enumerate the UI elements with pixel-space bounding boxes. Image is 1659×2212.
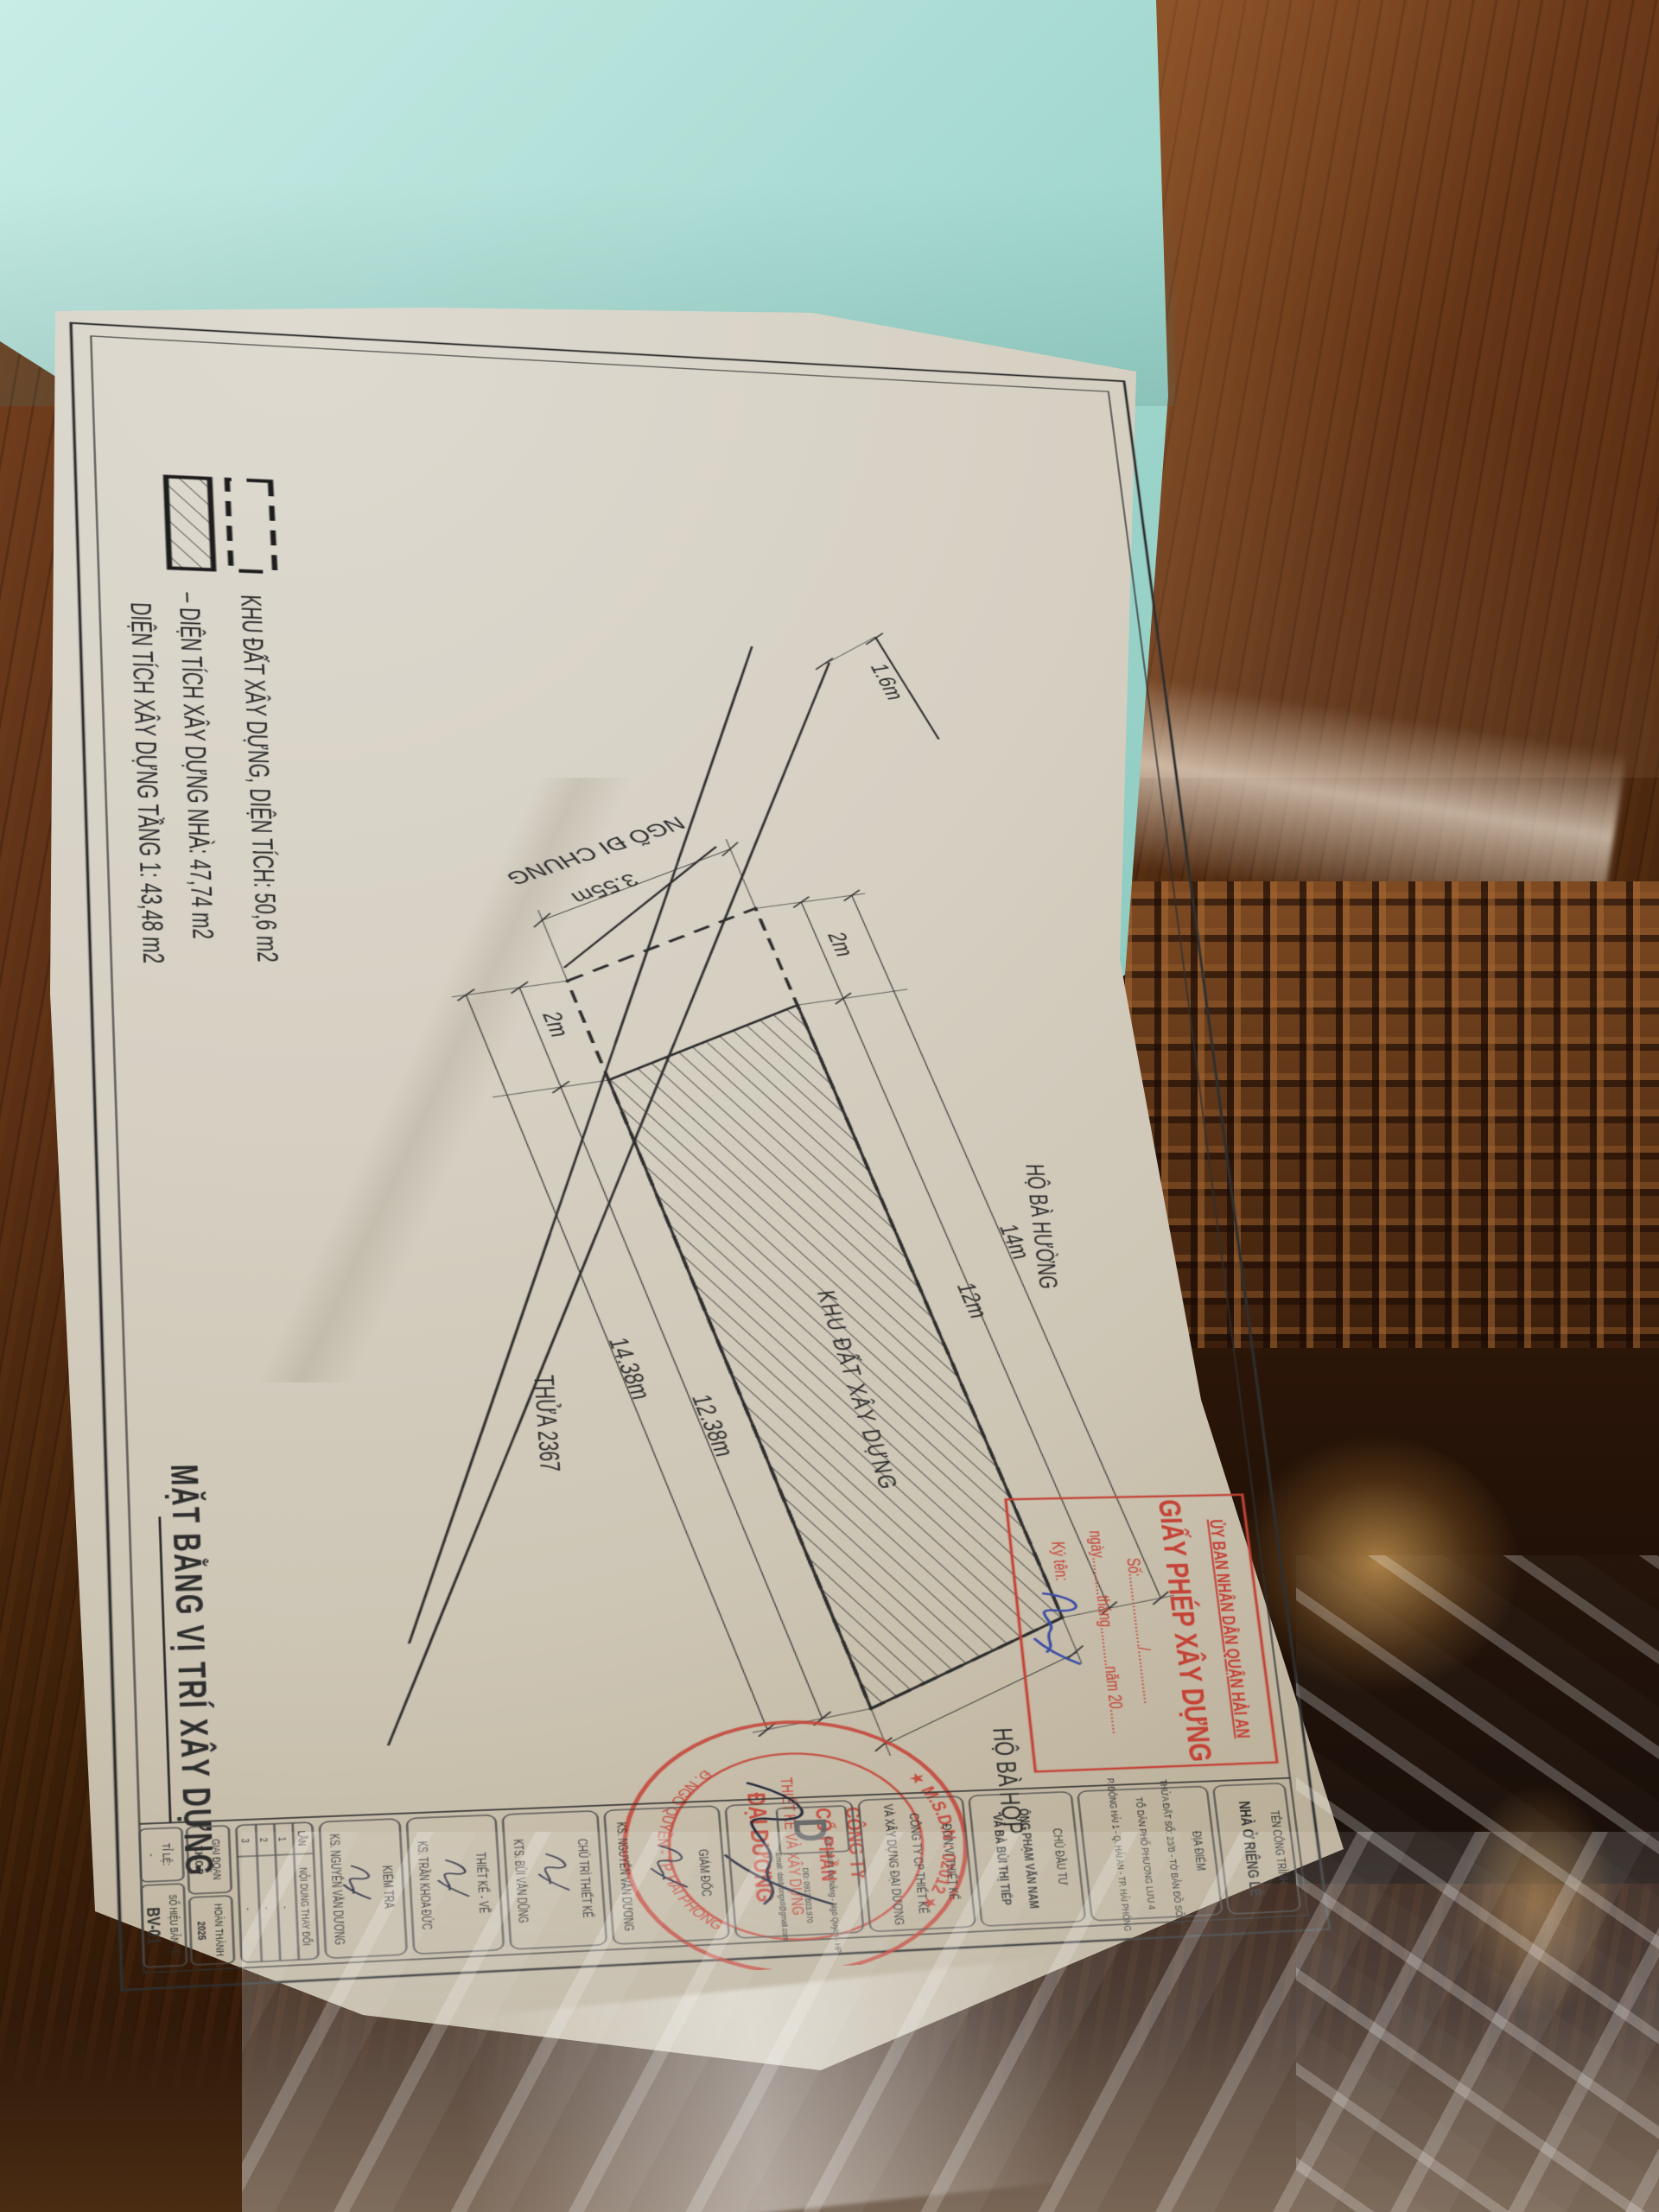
permit-sign-label: Ký tên: — [1047, 1541, 1071, 1581]
tb-project-value: NHÀ Ở RIÊNG LẺ — [1236, 1801, 1264, 1897]
tb-location-3: P. ĐÔNG HẢI 1 - Q. HẢI AN - TP. HẢI PHÒN… — [1105, 1778, 1135, 1932]
dim-length-sw: 14.38m — [603, 1336, 657, 1402]
stamp-company-4: ĐẠI DƯƠNG — [741, 1792, 779, 1903]
permit-authority: ỦY BAN NHÂN DÂN QUẬN HẢI AN — [1205, 1519, 1254, 1738]
svg-text:1: 1 — [276, 1837, 289, 1842]
drawing-title: MẶT BẰNG VỊ TRÍ XÂY DỰNG — [158, 1464, 221, 1878]
tb-designer-2: VÀ XÂY DỰNG ĐẠI DƯƠNG — [880, 1804, 907, 1926]
site-plan-document: NGÕ ĐI CHUNG 3.55m 1.6m 2m 2m 14m 12m 14… — [55, 313, 1346, 2004]
tb-finish-label: HOÀN THÀNH — [212, 1904, 226, 1957]
legend-house-symbol — [166, 476, 213, 569]
tb-checker-label: KIỂM TRA — [378, 1865, 397, 1909]
tb-sheet-label: SỐ HIỆU BẢN VẼ — [167, 1894, 183, 1956]
tb-drafter-name: KS. TRẦN KHOA ĐỨC — [414, 1840, 433, 1929]
legend: KHU ĐẤT XÂY DỰNG, DIỆN TÍCH: 50,6 m2 – D… — [119, 474, 294, 966]
tb-contact-1: Đ/C: 34/81 Đà Nẵng - Ngô Quyền - HP — [823, 1836, 844, 1954]
tb-location-2: TỔ DÂN PHỐ PHƯƠNG LƯU 4 — [1134, 1797, 1160, 1910]
stamp-arc-bottom: Đ. NGÔ QUYỀN - TP. HẢI PHÒNG — [648, 1767, 728, 1935]
svg-text:-: - — [260, 1906, 273, 1910]
tb-drafter-label: THIẾT KẾ - VẼ — [473, 1852, 493, 1914]
dim-setback-ne: 2m — [823, 931, 860, 957]
tb-finish-value: 2025 — [195, 1921, 209, 1940]
site-plan-drawing — [327, 613, 1192, 1775]
tb-rev-col2: NỘI DUNG THAY ĐỔI — [297, 1867, 315, 1946]
permit-date: ngày...........tháng...........năm 20...… — [1084, 1530, 1127, 1734]
carved-gilded-detail — [1434, 1745, 1642, 2056]
tb-location-label: ĐỊA ĐIỂM — [1189, 1831, 1208, 1872]
legend-row1: KHU ĐẤT XÂY DỰNG, DIỆN TÍCH: 50,6 m2 — [234, 594, 284, 963]
lot-number-label: THỬA 2367 — [528, 1375, 564, 1472]
tb-checker-name: KS. NGUYỄN VĂN DƯƠNG — [326, 1834, 346, 1945]
legend-row2: – DIỆN TÍCH XÂY DỰNG NHÀ: 47,74 m2 — [173, 592, 220, 939]
tb-project-label: TÊN CÔNG TRÌNH — [1267, 1810, 1291, 1885]
tb-chief-label: CHỦ TRÌ THIẾT KẾ — [575, 1839, 596, 1919]
tb-scale-value: - — [145, 1853, 158, 1857]
tb-location-1: THỬA ĐẤT SỐ: 23/B - TỜ BẢN ĐỒ SỐ: 2 — [1158, 1779, 1188, 1926]
svg-text:2: 2 — [257, 1837, 270, 1842]
dim-frontage: 3.55m — [567, 870, 644, 908]
tb-director-name: KS. NGUYỄN VĂN DƯƠNG — [613, 1822, 636, 1932]
stamp-company-1: CÔNG TY — [841, 1807, 872, 1881]
tb-chief-name: KTS. BÙI VĂN DŨNG — [510, 1839, 529, 1923]
permit-box: ỦY BAN NHÂN DÂN QUẬN HẢI AN GIẤY PHÉP XÂ… — [1006, 1495, 1277, 1772]
dim-house-ne: 12m — [951, 1281, 994, 1319]
svg-text:3: 3 — [239, 1838, 252, 1843]
dim-setback-sw: 2m — [537, 1010, 575, 1039]
tb-scale-label: TỈ LỆ: — [160, 1843, 175, 1866]
dim-house-sw: 12.38m — [686, 1392, 740, 1459]
legend-parcel-symbol — [227, 480, 275, 573]
tb-director-label: GIÁM ĐỐC — [695, 1849, 715, 1897]
photo-scene: { "legend": { "row1": "KHU ĐẤT XÂY DỰNG,… — [0, 0, 1659, 2212]
tb-sheet-value: BV-01 — [142, 1907, 163, 1945]
tb-rev-col1: LẦN — [296, 1830, 308, 1846]
tb-designer-1: CÔNG TY CP THIẾT KẾ — [906, 1813, 931, 1914]
legend-row3: DIỆN TÍCH XÂY DỰNG TẦNG 1: 43,48 m2 — [124, 601, 170, 963]
svg-text:-: - — [279, 1906, 292, 1910]
neighbor-right-label: HỘ BÀ HƯỜNG — [1020, 1164, 1062, 1289]
svg-text:-: - — [242, 1907, 255, 1910]
alley-label: NGÕ ĐI CHUNG — [501, 812, 690, 889]
tb-investor-1: ÔNG PHẠM VĂN NAM — [1016, 1808, 1042, 1909]
tb-investor-label: CHỦ ĐẦU TƯ — [1049, 1828, 1071, 1886]
svg-text:Đ. NGÔ QUYỀN - TP. HẢI PHÒNG: Đ. NGÔ QUYỀN - TP. HẢI PHÒNG — [648, 1767, 728, 1935]
permit-number: Số:..................../............... — [1122, 1558, 1159, 1705]
tb-contact-2: DĐ: 0913.603.970 — [800, 1868, 816, 1924]
